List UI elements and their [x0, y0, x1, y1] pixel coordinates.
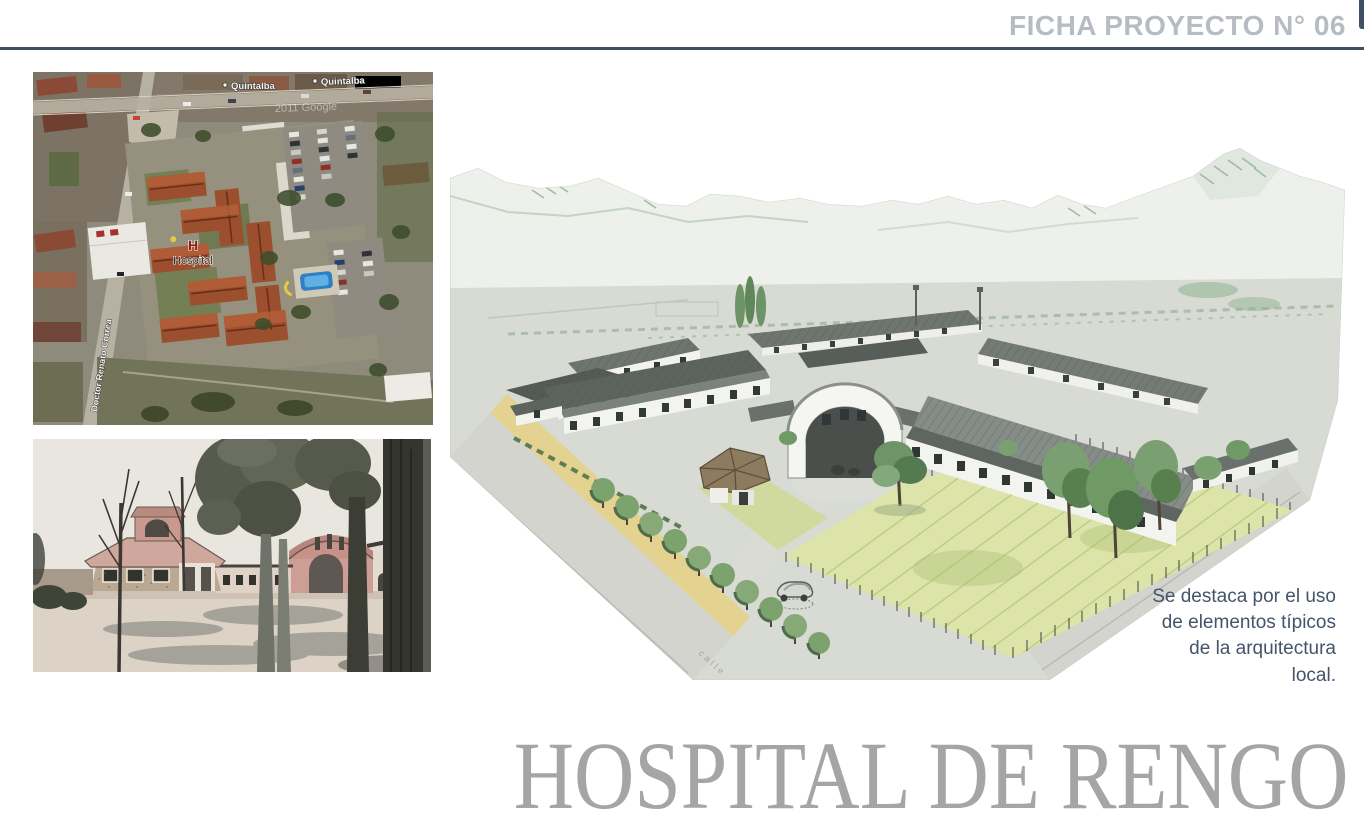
- photo-big-trunk: [383, 439, 431, 672]
- project-title: HOSPITAL DE RENGO: [513, 728, 1348, 822]
- satellite-map-image: 2011 Google Quintalba Quintalba H Hospit…: [33, 72, 433, 425]
- hospital-marker-icon: H: [188, 237, 198, 253]
- sketch-mountains: [448, 138, 1345, 298]
- corner-accent: [1359, 0, 1364, 29]
- header-divider: [0, 47, 1364, 50]
- site-photo-svg: [33, 439, 431, 672]
- white-annex-roof: [88, 222, 151, 280]
- sheet-number-title: FICHA PROYECTO N° 06: [1009, 10, 1346, 42]
- sketch-caption: Se destaca por el uso de elementos típic…: [1144, 584, 1336, 689]
- site-photo-image: [33, 439, 431, 672]
- street-label-quintalba-2: Quintalba: [321, 75, 366, 88]
- street-label-quintalba-1: Quintalba: [231, 81, 276, 92]
- satellite-map-svg: 2011 Google Quintalba Quintalba H Hospit…: [33, 72, 433, 425]
- project-sheet-slide: FICHA PROYECTO N° 06: [0, 0, 1364, 822]
- hospital-marker-label: Hospital: [173, 255, 213, 267]
- map-watermark: 2011 Google: [275, 101, 338, 115]
